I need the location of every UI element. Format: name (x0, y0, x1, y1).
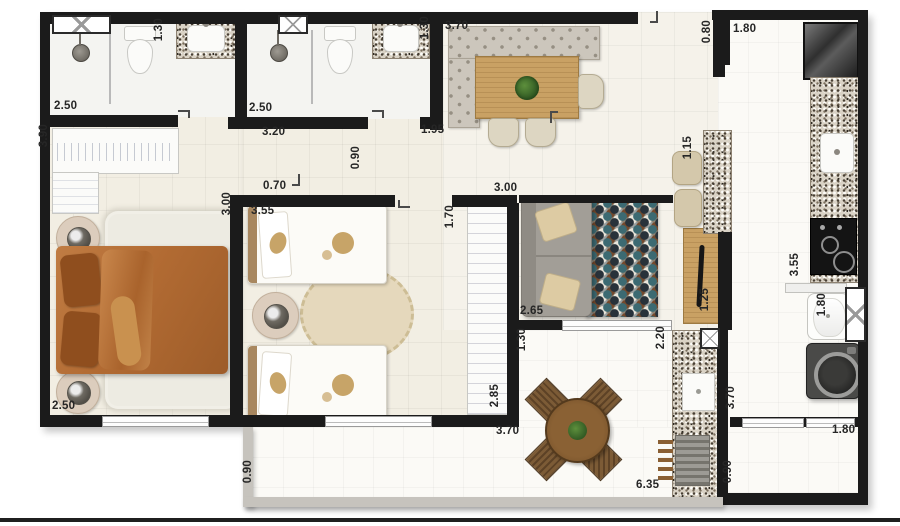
window-master (102, 416, 209, 427)
door-mark-bedroom2-small (292, 174, 300, 186)
wall-bedroom2-right (507, 203, 519, 427)
dimension-label: 1.80 (832, 424, 855, 436)
burner-icon (837, 225, 842, 230)
teddy-decor (322, 250, 332, 260)
wall-kitchen-entry-foot (713, 65, 725, 77)
dimension-label: 3.70 (725, 386, 737, 409)
wall-bedroom2-left (230, 195, 243, 427)
balcony-table (545, 398, 610, 463)
pillow (60, 310, 103, 367)
burner-icon (833, 251, 855, 273)
wall-living-top (519, 195, 673, 203)
counter-stool (674, 189, 702, 227)
dining-chair (488, 118, 519, 147)
window-kitchen-side (845, 287, 866, 342)
plant-icon (568, 421, 587, 440)
dimension-label: 3.20 (262, 126, 285, 138)
sofa-pillow (534, 201, 578, 243)
image-border-line (0, 518, 900, 522)
sink-basin (383, 25, 419, 52)
faucet-icon (834, 149, 840, 155)
window-bath1 (52, 15, 111, 34)
dimension-label: 2.50 (249, 102, 272, 114)
pillow (59, 252, 102, 308)
cooktop (810, 218, 857, 275)
window-laundry-1 (742, 418, 804, 428)
master-bed (56, 246, 228, 374)
window-bbq (700, 328, 720, 349)
dimension-label: 1.30 (153, 18, 165, 41)
dimension-label: 3.55 (251, 205, 274, 217)
dining-chair (578, 74, 604, 109)
dimension-label: 2.20 (655, 326, 667, 349)
dimension-label: 1.30 (419, 16, 431, 39)
sofa (521, 197, 592, 317)
sofa-pillow (539, 272, 582, 312)
dimension-label: 1.80 (816, 293, 828, 316)
laundry-tub (807, 293, 850, 340)
wall-bath2-bottom (228, 117, 368, 129)
wall-kitchen-living (718, 232, 732, 330)
burner-icon (820, 225, 825, 230)
dimension-label: 1.70 (444, 205, 456, 228)
dimension-label: 0.70 (263, 180, 286, 192)
kitchen-shelf (785, 283, 847, 293)
dimension-label: 3.90 (38, 124, 50, 147)
kitchen-peninsula (703, 130, 732, 234)
shower-head-icon (270, 44, 288, 62)
wall-exterior-left (40, 12, 50, 427)
dimension-label: 3.00 (221, 192, 233, 215)
dimension-label: 1.80 (733, 23, 756, 35)
shower-glass (109, 30, 111, 104)
teddy-decor (332, 232, 354, 254)
teddy-decor (322, 392, 332, 402)
door-mark-entry-hall (550, 111, 558, 123)
dimension-label: 0.80 (701, 20, 713, 43)
burner-icon (821, 236, 839, 254)
dimension-label: 2.50 (54, 100, 77, 112)
wall-bath-divider (235, 12, 247, 122)
sink-basin (187, 25, 225, 52)
dimension-label: 0.90 (350, 146, 362, 169)
dimension-label: 0.90 (722, 460, 734, 483)
dining-banquette-top (448, 26, 600, 60)
balcony-railing-bottom (243, 497, 723, 507)
dimension-label: 3.55 (789, 253, 801, 276)
wall-kitchen-entry-stub (713, 12, 730, 65)
bbq-sink (682, 373, 715, 411)
teddy-decor (332, 374, 354, 396)
lamp-icon (264, 304, 289, 329)
dimension-label: 2.65 (520, 305, 543, 317)
bedroom2-bed (247, 345, 387, 422)
kitchen-sink (820, 133, 854, 173)
toilet (324, 26, 354, 74)
dimension-label: 3.70 (496, 425, 519, 437)
living-rug (585, 197, 658, 317)
bedroom2-nightstand (252, 292, 299, 339)
dimension-label: 2.85 (489, 384, 501, 407)
window-bath2 (278, 15, 308, 34)
dimension-label: 3.00 (494, 182, 517, 194)
plant-icon (515, 76, 539, 100)
dimension-label: 6.35 (636, 479, 659, 491)
dimension-label: 2.50 (52, 400, 75, 412)
dimension-label: 1.30 (516, 328, 528, 351)
master-wardrobe (52, 128, 179, 174)
shower-glass (311, 30, 313, 104)
washing-machine (806, 343, 860, 399)
toilet (124, 26, 154, 74)
door-mark-bath2 (372, 110, 384, 118)
wall-exterior-right (858, 10, 868, 505)
master-wardrobe-shelves (52, 172, 99, 214)
dining-table (475, 56, 579, 119)
wall-exterior-top-right (712, 10, 868, 20)
dimension-label: 1.95 (421, 124, 444, 136)
dimension-label: 1.25 (699, 288, 711, 311)
door-mark-entry-top (650, 11, 658, 23)
shower-head-icon (72, 44, 90, 62)
dimension-label: 1.15 (682, 136, 694, 159)
wall-exterior-bottom-right (717, 493, 868, 505)
grill (675, 435, 710, 486)
refrigerator (803, 22, 859, 80)
door-mark-bath1 (178, 110, 190, 118)
wall-bath2-dining (430, 12, 443, 130)
dimension-label: 3.70 (445, 20, 468, 32)
door-mark-bedroom2 (398, 200, 410, 208)
floor-plan: 2.501.302.501.303.201.953.700.801.803.90… (0, 0, 900, 526)
dimension-label: 0.90 (242, 460, 254, 483)
ladder-shelf (658, 440, 673, 482)
window-bedroom2 (325, 416, 432, 427)
wall-bath1-bottom (40, 115, 178, 127)
wall-exterior-top (40, 12, 638, 24)
plan-canvas: 2.501.302.501.303.201.953.700.801.803.90… (0, 0, 900, 526)
